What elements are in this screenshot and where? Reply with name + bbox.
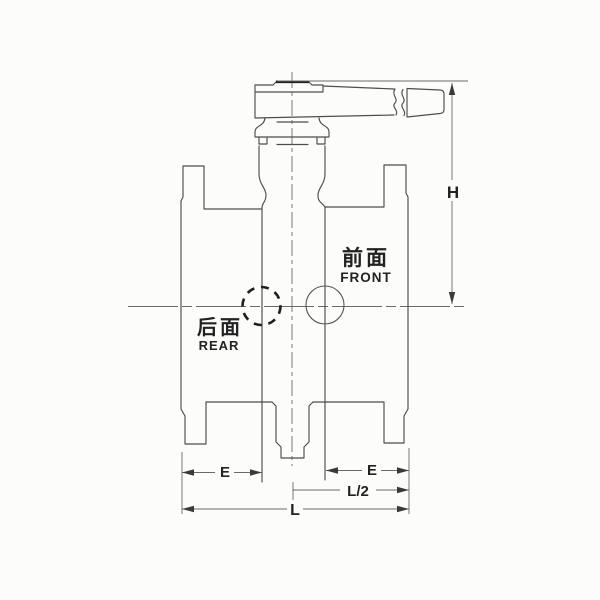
e-right-arrow-left xyxy=(326,467,338,473)
annotations: 前面 FRONT 后面 REAR xyxy=(197,246,392,353)
e-left-arrow-left xyxy=(182,469,194,475)
h-arrow-up xyxy=(449,83,455,95)
dimension-L: L xyxy=(182,500,409,519)
stem-end-lines xyxy=(277,122,308,145)
rear-label-english: REAR xyxy=(199,338,240,353)
e-left-label: E xyxy=(220,464,230,481)
handle-break-lines xyxy=(394,89,405,116)
e-right-arrow-right xyxy=(397,467,409,473)
l-arrow-left xyxy=(182,506,194,512)
valve-handle xyxy=(255,81,444,118)
h-arrow-down xyxy=(449,292,455,304)
dimension-E-left: E xyxy=(182,452,262,514)
l-half-label: L/2 xyxy=(347,483,369,500)
h-label: H xyxy=(447,183,459,202)
valve-engineering-drawing: H E E L/2 L 前面 FRONT 后面 REAR xyxy=(0,0,600,600)
handle-bar xyxy=(255,81,394,118)
handle-grip xyxy=(407,89,444,118)
dimension-L-half: L/2 xyxy=(293,481,409,500)
front-label-chinese: 前面 xyxy=(342,246,390,270)
l-label: L xyxy=(290,502,300,519)
l-half-arrow-right xyxy=(397,487,409,493)
centerlines xyxy=(128,72,466,466)
drawing-canvas: H E E L/2 L 前面 FRONT 后面 REAR xyxy=(0,0,600,600)
right-flange xyxy=(313,165,408,443)
l-arrow-right xyxy=(397,506,409,512)
left-flange xyxy=(181,166,272,444)
bottom-drain-boss xyxy=(272,402,313,458)
e-left-arrow-right xyxy=(250,469,262,475)
rear-label-chinese: 后面 xyxy=(197,316,243,339)
front-label-english: FRONT xyxy=(340,270,392,285)
port-circles xyxy=(243,286,345,325)
e-right-label: E xyxy=(367,462,377,479)
